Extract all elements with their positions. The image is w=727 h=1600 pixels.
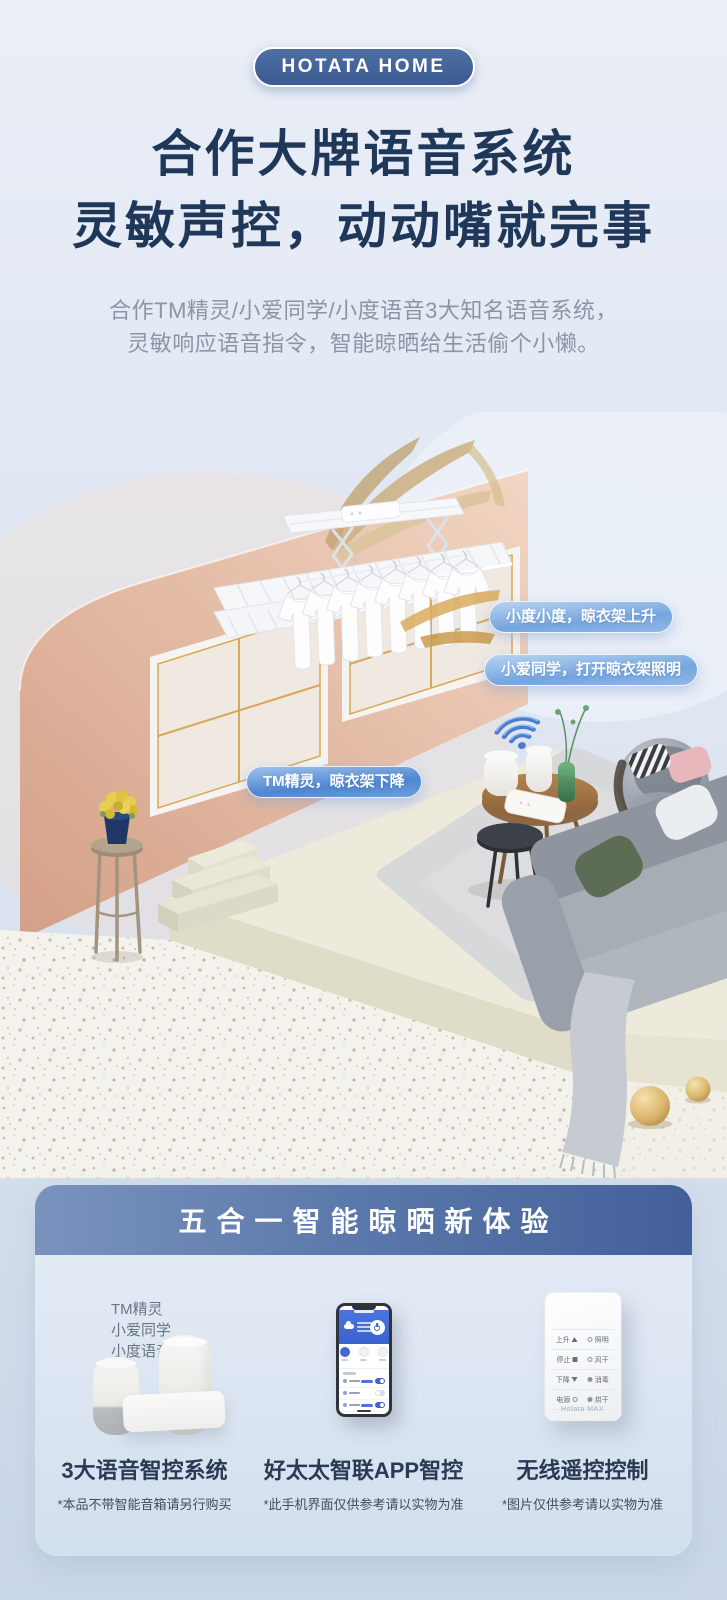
mode-button-idle <box>378 1347 388 1357</box>
promo-page: HOTATA HOME 合作大牌语音系统 灵敏声控，动动嘴就完事 合作TM精灵/… <box>0 0 727 1600</box>
toggle-on <box>375 1402 385 1408</box>
voice-bubble-tmall-text: TM精灵，晾衣架下降 <box>263 773 405 790</box>
power-ring-icon <box>572 1397 577 1402</box>
hero-subtitle: 合作TM精灵/小爱同学/小度语音3大知名语音系统， 灵敏响应语音指令，智能晾晒给… <box>0 294 727 360</box>
remote-graphic: 上升 照明 停止 风干 下降 消毒 <box>473 1297 692 1447</box>
hero-title-line2: 灵敏声控，动动嘴就完事 <box>0 190 727 262</box>
remote-label-stop: 停止 <box>557 1355 571 1365</box>
remote-label-light: 照明 <box>595 1335 609 1345</box>
mode-button-active <box>340 1347 350 1357</box>
room-scene: 小度小度，晾衣架上升 小爱同学，打开晾衣架照明 TM精灵，晾衣架下降 <box>0 412 727 1178</box>
phone-mockup <box>336 1303 392 1417</box>
hero-title-line1: 合作大牌语音系统 <box>0 118 727 190</box>
remote-label-sterilize: 消毒 <box>595 1375 609 1385</box>
remote-label-down: 下降 <box>556 1375 570 1385</box>
mode-button-idle <box>359 1347 369 1357</box>
app-phone-graphic <box>254 1297 473 1447</box>
power-icon <box>370 1320 385 1335</box>
app-title-bar <box>354 1310 374 1313</box>
voice-speakers-graphic: TM精灵 小爱同学 小度语音 <box>35 1297 254 1447</box>
smart-speaker-bar <box>122 1390 226 1432</box>
voice-caption: 3大语音智控系统 <box>35 1453 254 1485</box>
app-list-row <box>339 1388 389 1400</box>
voice-footnote: *本品不带智能音箱请另行购买 <box>35 1494 254 1513</box>
remote-caption: 无线遥控控制 <box>473 1453 692 1485</box>
remote-mockup: 上升 照明 停止 风干 下降 消毒 <box>544 1292 621 1421</box>
feature-panel-header: 五合一智能晾晒新体验 <box>35 1185 692 1255</box>
remote-label-power: 电源 <box>556 1395 570 1405</box>
feature-panel: 五合一智能晾晒新体验 TM精灵 小爱同学 小度语音 3大语音智控系统 *本品不带… <box>35 1185 692 1556</box>
app-mode-row <box>339 1344 389 1369</box>
phone-screen <box>339 1306 389 1414</box>
voice-bubble-xiaoai-text: 小爱同学，打开晾衣架照明 <box>501 661 681 678</box>
remote-brand-text: Hotata MAX <box>544 1406 621 1413</box>
feature-panel-body: TM精灵 小爱同学 小度语音 3大语音智控系统 *本品不带智能音箱请另行购买 <box>35 1255 692 1513</box>
hero-title: 合作大牌语音系统 灵敏声控，动动嘴就完事 <box>0 118 727 262</box>
speaker-label-xiaoai: 小爱同学 <box>111 1320 171 1341</box>
feature-app-column: 好太太智联APP智控 *此手机界面仅供参考请以实物为准 <box>254 1297 473 1513</box>
brand-badge: HOTATA HOME <box>253 47 475 87</box>
speaker-label-tmall: TM精灵 <box>111 1299 171 1320</box>
voice-bubble-xiaodu: 小度小度，晾衣架上升 <box>489 601 673 633</box>
weather-cloud-icon <box>344 1324 354 1329</box>
phone-notch <box>352 1306 376 1310</box>
voice-bubble-xiaodu-text: 小度小度，晾衣架上升 <box>506 608 656 625</box>
heat-dry-icon <box>588 1397 593 1402</box>
feature-voice-column: TM精灵 小爱同学 小度语音 3大语音智控系统 *本品不带智能音箱请另行购买 <box>35 1297 254 1513</box>
toggle-off <box>375 1390 385 1396</box>
down-icon <box>572 1377 578 1382</box>
home-indicator <box>357 1410 371 1412</box>
voice-bubble-tmall: TM精灵，晾衣架下降 <box>246 766 422 798</box>
remote-label-airdry: 风干 <box>595 1355 609 1365</box>
app-header <box>339 1310 389 1344</box>
air-dry-icon <box>588 1357 593 1362</box>
app-caption: 好太太智联APP智控 <box>254 1453 473 1485</box>
stop-icon <box>573 1357 578 1362</box>
remote-row: 上升 照明 <box>551 1329 614 1349</box>
hero-subtitle-line2: 灵敏响应语音指令，智能晾晒给生活偷个小懒。 <box>0 327 727 360</box>
sterilize-icon <box>588 1377 593 1382</box>
up-icon <box>572 1337 578 1342</box>
app-section-bar <box>343 1372 356 1375</box>
feature-remote-column: 上升 照明 停止 风干 下降 消毒 <box>473 1297 692 1513</box>
remote-footnote: *图片仅供参考请以实物为准 <box>473 1494 692 1513</box>
app-footnote: *此手机界面仅供参考请以实物为准 <box>254 1494 473 1513</box>
remote-row: 停止 风干 <box>551 1349 614 1369</box>
toggle-on <box>375 1378 385 1384</box>
hero-subtitle-line1: 合作TM精灵/小爱同学/小度语音3大知名语音系统， <box>0 294 727 327</box>
remote-label-heatdry: 烘干 <box>595 1395 609 1405</box>
app-list-row <box>339 1376 389 1388</box>
remote-row: 下降 消毒 <box>551 1369 614 1389</box>
light-icon <box>588 1337 593 1342</box>
voice-bubble-xiaoai: 小爱同学，打开晾衣架照明 <box>484 654 698 686</box>
remote-label-up: 上升 <box>556 1335 570 1345</box>
feature-panel-title: 五合一智能晾晒新体验 <box>168 1200 558 1240</box>
brand-badge-label: HOTATA HOME <box>282 56 446 78</box>
